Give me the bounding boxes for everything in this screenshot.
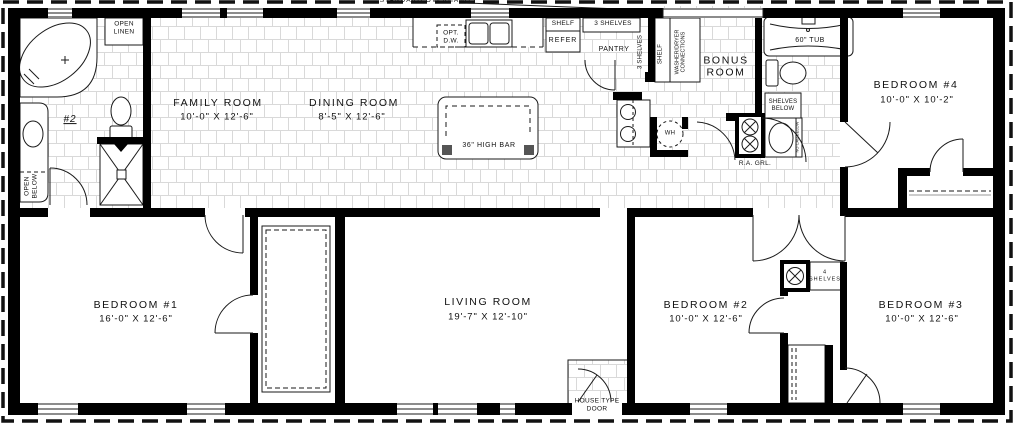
bath3-tub [764,17,853,56]
bath2-shower [100,144,143,205]
high-bar-island [438,97,538,159]
refrigerator [546,18,580,52]
floor-plan: STANDARD OVERHANGS FAMILY ROOM 10'-0" X … [0,0,1014,424]
hall-double-door-right [799,215,845,261]
hall-double-door-left [753,215,799,261]
open-linen-closet [105,18,143,45]
bedroom4-closet-door [930,139,963,172]
utility-closet [655,18,700,82]
bath2-vanity [20,103,48,202]
pantry-shelves [583,18,640,32]
floor-plan-drawing [0,0,1014,424]
bath3-shelves [765,93,801,118]
bath3-toilet [766,60,806,86]
hall-closet-bifold [788,345,825,403]
bedroom3-door [845,368,880,403]
return-air-grille [739,117,761,154]
kitchen-sink [466,20,512,47]
bath2-toilet [110,97,132,139]
bedroom1-closet-door [215,295,253,333]
bedroom1-door [205,215,243,253]
four-shelves-closet [810,262,843,290]
water-heater [657,121,683,147]
bedroom1-closet [262,226,330,392]
bedroom4-closet [909,191,991,195]
range [617,100,650,147]
hall-fan-grille [784,264,806,288]
bedroom4-door [845,122,890,167]
bedroom2-door [749,298,784,333]
